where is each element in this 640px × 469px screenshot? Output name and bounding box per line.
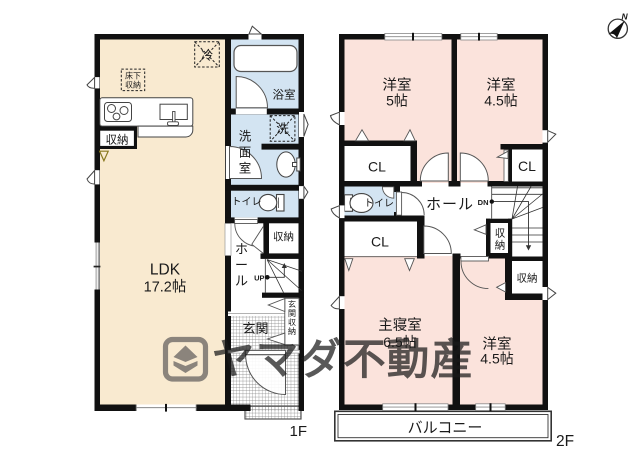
svg-text:ヤマダ不動産: ヤマダ不動産 (212, 337, 473, 384)
